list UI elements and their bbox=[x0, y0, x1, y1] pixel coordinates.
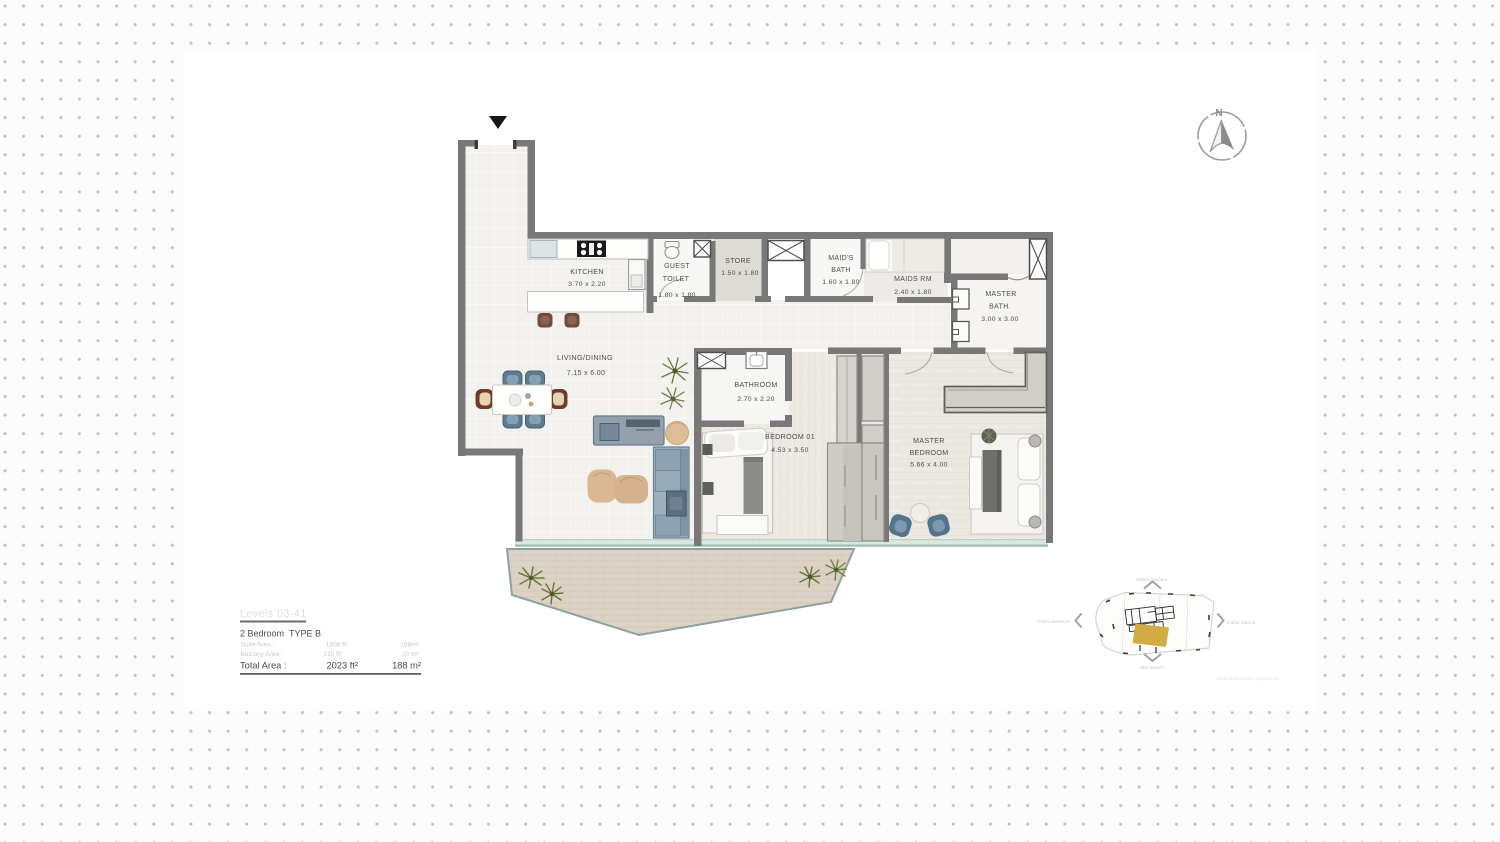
svg-text:188 m²: 188 m² bbox=[392, 661, 421, 671]
svg-text:7.15 x 6.00: 7.15 x 6.00 bbox=[567, 370, 606, 377]
svg-text:Dubai Harbour: Dubai Harbour bbox=[1136, 577, 1168, 583]
svg-text:Balcony Area :: Balcony Area : bbox=[241, 651, 284, 658]
svg-text:MAIDS RM: MAIDS RM bbox=[894, 276, 932, 283]
svg-text:KITCHEN: KITCHEN bbox=[570, 268, 604, 276]
svg-text:STORE: STORE bbox=[725, 258, 751, 265]
svg-text:2.70 x 2.20: 2.70 x 2.20 bbox=[737, 396, 774, 403]
svg-text:1.80 x 1.80: 1.80 x 1.80 bbox=[658, 292, 695, 299]
svg-text:Dubai Marina: Dubai Marina bbox=[1227, 620, 1256, 626]
svg-text:BATH: BATH bbox=[831, 267, 851, 274]
svg-text:All dimensions are approximate: All dimensions are approximate bbox=[1216, 676, 1281, 681]
svg-text:MASTER: MASTER bbox=[985, 291, 1016, 298]
svg-text:BATHROOM: BATHROOM bbox=[734, 381, 777, 389]
svg-text:LIVING/DINING: LIVING/DINING bbox=[557, 353, 613, 362]
svg-text:3.00 x 3.00: 3.00 x 3.00 bbox=[981, 316, 1018, 323]
svg-text:GUEST: GUEST bbox=[664, 263, 690, 270]
svg-text:MASTER: MASTER bbox=[913, 437, 945, 445]
svg-text:Levels 03-41: Levels 03-41 bbox=[240, 608, 307, 620]
svg-text:1808 ft²: 1808 ft² bbox=[326, 642, 349, 649]
svg-text:N: N bbox=[1215, 108, 1222, 119]
svg-text:215 ft²: 215 ft² bbox=[323, 651, 342, 658]
svg-text:MAID'S: MAID'S bbox=[828, 255, 854, 262]
svg-text:3.70 x 2.20: 3.70 x 2.20 bbox=[568, 281, 605, 288]
svg-text:BEDROOM: BEDROOM bbox=[909, 449, 948, 457]
svg-text:2023 ft²: 2023 ft² bbox=[326, 661, 358, 671]
svg-text:1.50 x 1.80: 1.50 x 1.80 bbox=[721, 270, 758, 277]
svg-text:2.40 x 1.80: 2.40 x 1.80 bbox=[894, 289, 931, 296]
svg-text:Palm Jumeirah: Palm Jumeirah bbox=[1038, 619, 1070, 625]
svg-text:BEDROOM 01: BEDROOM 01 bbox=[765, 433, 815, 441]
svg-text:Total Area :: Total Area : bbox=[240, 661, 287, 671]
svg-text:BATH.: BATH. bbox=[989, 304, 1011, 311]
svg-text:Suite Area :: Suite Area : bbox=[241, 642, 275, 649]
svg-text:1.60 x 1.80: 1.60 x 1.80 bbox=[822, 279, 859, 286]
svg-text:20 m²: 20 m² bbox=[402, 651, 420, 658]
svg-text:2 Bedroom TYPE B: 2 Bedroom TYPE B bbox=[240, 629, 321, 639]
svg-text:JBR Beach: JBR Beach bbox=[1140, 665, 1164, 671]
svg-text:4.53 x 3.50: 4.53 x 3.50 bbox=[771, 447, 808, 454]
svg-text:168m²: 168m² bbox=[400, 642, 419, 649]
svg-text:TOILET: TOILET bbox=[663, 276, 690, 283]
svg-text:5.66 x 4.00: 5.66 x 4.00 bbox=[910, 462, 947, 469]
